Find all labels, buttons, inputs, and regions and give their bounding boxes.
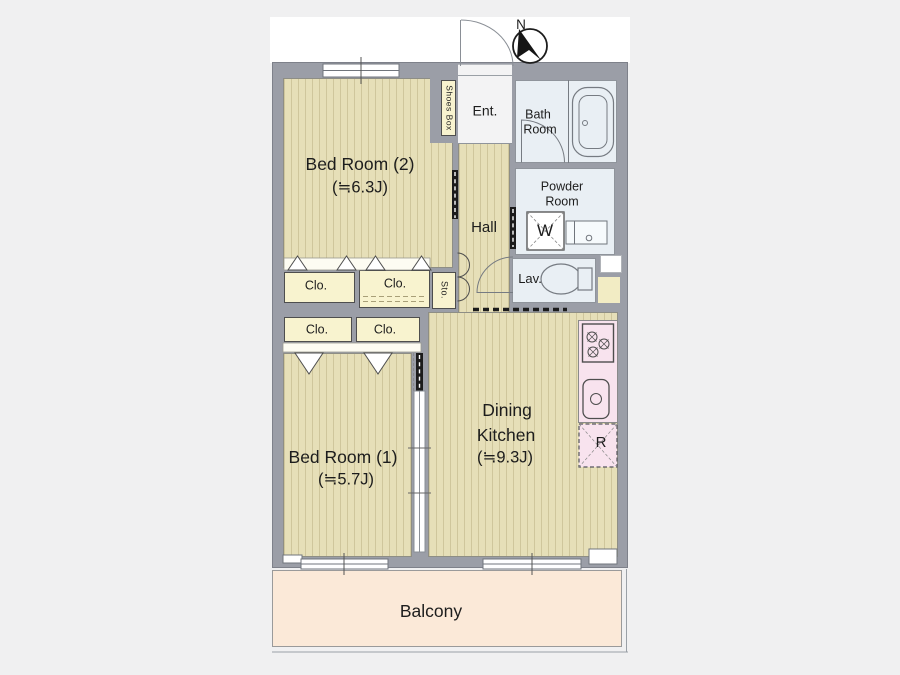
lavatory-label: Lav.	[518, 272, 542, 286]
bedroom1-name-label: Bed Room (1)	[289, 448, 398, 466]
shoes-box-label: Shoes Box	[445, 85, 454, 131]
bedroom2-size-label: (≒6.3J)	[332, 179, 388, 196]
bedroom2-sliding-door	[452, 170, 458, 219]
closet-4-label: Clo.	[374, 323, 396, 336]
toilet-icon	[541, 264, 592, 294]
powder-room-label-line1: Powder	[541, 180, 583, 193]
storage-label: Sto.	[439, 281, 448, 299]
dining-kitchen-label-line2: Kitchen	[477, 426, 535, 444]
entrance-door-arc	[461, 20, 514, 66]
stove-icon	[583, 324, 614, 362]
refrigerator-label: R	[596, 435, 607, 451]
closet2-shelf-dashes	[363, 297, 427, 302]
entrance-label: Ent.	[473, 104, 498, 119]
storage-folding-doors	[458, 253, 470, 301]
powder-room-label-line2: Room	[545, 195, 578, 208]
closet-2-label: Clo.	[384, 277, 406, 290]
dining-kitchen-size-label: (≒9.3J)	[477, 449, 533, 466]
powder-room-sliding-door	[510, 207, 516, 249]
compass-north-label: N	[516, 18, 526, 32]
hall-dk-door-arc	[477, 257, 513, 293]
vanity-sink-icon	[566, 221, 607, 244]
bedroom1-size-label: (≒5.7J)	[318, 471, 374, 488]
bedroom2-closet-doors	[284, 256, 431, 270]
closet-1-label: Clo.	[305, 279, 327, 292]
dk-balcony-window	[483, 549, 617, 575]
hall-label: Hall	[471, 220, 497, 236]
dining-kitchen-label-line1: Dining	[482, 401, 532, 419]
balcony-label: Balcony	[400, 602, 462, 620]
bathtub-icon	[569, 80, 614, 163]
washing-machine-label: W	[537, 222, 553, 240]
closet-3-label: Clo.	[306, 323, 328, 336]
bath-room-label-line1: Bath	[525, 108, 551, 121]
bedroom1-balcony-window	[283, 553, 388, 575]
bedroom1-dk-partition-door	[408, 353, 431, 552]
bedroom2-name-label: Bed Room (2)	[306, 155, 415, 173]
bath-room-label-line2: Room	[523, 123, 556, 136]
north-compass-icon	[513, 29, 547, 63]
bedroom2-window	[323, 57, 399, 84]
kitchen-sink-icon	[583, 380, 609, 419]
floor-plan: N Ent. Shoes Box Bath Room Powder Room W…	[0, 0, 900, 675]
bedroom1-closet-doors	[283, 343, 421, 374]
